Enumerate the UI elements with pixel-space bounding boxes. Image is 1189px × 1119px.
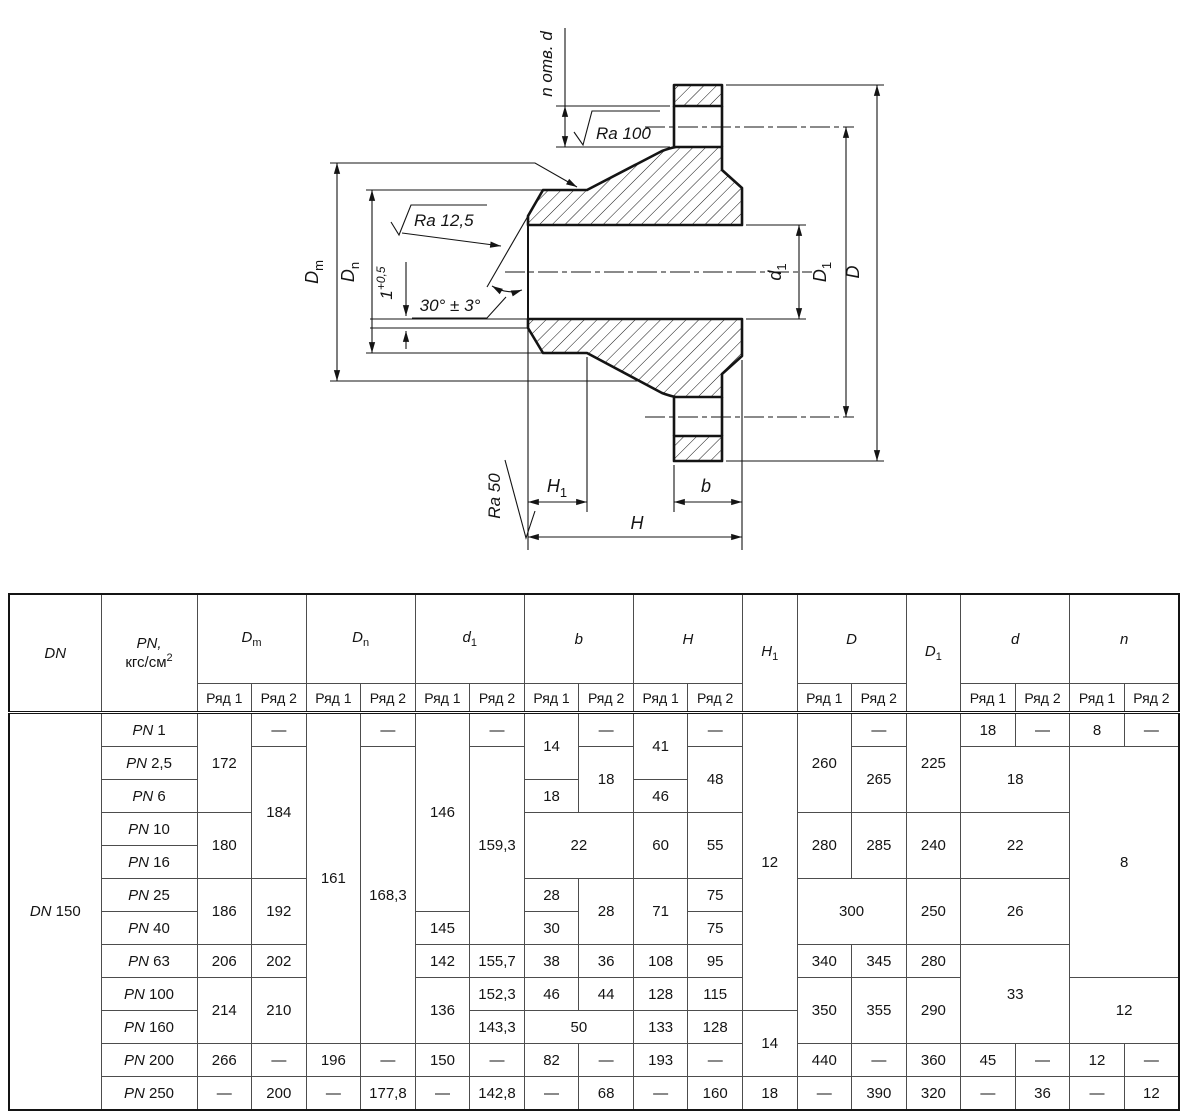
col-header: b	[524, 594, 633, 684]
value-cell: 133	[633, 1011, 688, 1044]
pn-cell: PN 200	[101, 1044, 197, 1077]
value-cell: 202	[252, 945, 307, 978]
value-cell: 196	[306, 1044, 361, 1077]
value-cell: 115	[688, 978, 743, 1011]
series-header: Ряд 2	[852, 684, 907, 713]
value-cell: 186	[197, 879, 252, 945]
value-cell: 136	[415, 978, 470, 1044]
bolt-hole-rim-top	[674, 85, 722, 106]
value-cell: 14	[742, 1011, 797, 1077]
value-cell: 290	[906, 978, 961, 1044]
col-header: D1	[906, 594, 961, 713]
angle-arc	[492, 286, 522, 292]
value-cell: 50	[524, 1011, 633, 1044]
col-header: H1	[742, 594, 797, 713]
value-cell: —	[415, 1077, 470, 1111]
value-cell: 177,8	[361, 1077, 416, 1111]
value-cell: 360	[906, 1044, 961, 1077]
value-cell: 440	[797, 1044, 852, 1077]
table-row: PN 2,5184168,3159,31848265188	[9, 747, 1179, 780]
series-header: Ряд 2	[1015, 684, 1070, 713]
series-header: Ряд 1	[524, 684, 579, 713]
value-cell: 240	[906, 813, 961, 879]
value-cell: 48	[688, 747, 743, 813]
value-cell: 345	[852, 945, 907, 978]
H-label: H	[631, 513, 645, 533]
value-cell: 200	[252, 1077, 307, 1111]
value-cell: 95	[688, 945, 743, 978]
value-cell: 146	[415, 713, 470, 912]
value-cell: 12	[1070, 1044, 1125, 1077]
pn-cell: PN 63	[101, 945, 197, 978]
value-cell: 18	[961, 713, 1016, 747]
value-cell: 192	[252, 879, 307, 945]
value-cell: 159,3	[470, 747, 525, 945]
value-cell: 38	[524, 945, 579, 978]
dn-label: Dn	[338, 262, 362, 282]
value-cell: —	[361, 713, 416, 747]
value-cell: 390	[852, 1077, 907, 1111]
flange-drawing: n отв. d Ra 100 Ra 12,5 Ra 50 30° ± 3° 1…	[0, 0, 1189, 572]
value-cell: —	[688, 713, 743, 747]
col-header: n	[1070, 594, 1179, 684]
pn-cell: PN 160	[101, 1011, 197, 1044]
value-cell: 28	[524, 879, 579, 912]
value-cell: 150	[415, 1044, 470, 1077]
H1-label: H1	[547, 476, 567, 500]
value-cell: 60	[633, 813, 688, 879]
series-header: Ряд 1	[1070, 684, 1125, 713]
bolt-holes-label: n отв. d	[537, 31, 556, 97]
bolt-hole-rim-bottom	[674, 436, 722, 461]
value-cell: 128	[633, 978, 688, 1011]
value-cell: 355	[852, 978, 907, 1044]
col-header: d1	[415, 594, 524, 684]
value-cell: 340	[797, 945, 852, 978]
value-cell: 168,3	[361, 747, 416, 1044]
table-row: PN 250—200—177,8—142,8—68—16018—390320—3…	[9, 1077, 1179, 1111]
value-cell: 350	[797, 978, 852, 1044]
value-cell: 225	[906, 713, 961, 813]
table-row: DN 150PN 1172—161—146—14—41—12260—22518—…	[9, 713, 1179, 747]
land-label: 1+0,5	[374, 266, 396, 299]
value-cell: 142	[415, 945, 470, 978]
series-header: Ряд 1	[306, 684, 361, 713]
value-cell: 68	[579, 1077, 634, 1111]
value-cell: 36	[1015, 1077, 1070, 1111]
ra100-label: Ra 100	[596, 124, 651, 143]
series-header: Ряд 1	[633, 684, 688, 713]
value-cell: 75	[688, 879, 743, 912]
pn-cell: PN 6	[101, 780, 197, 813]
table-row: PN 251861922828717530025026	[9, 879, 1179, 912]
pn-cell: PN 40	[101, 912, 197, 945]
pn-cell: PN 1	[101, 713, 197, 747]
value-cell: 18	[524, 780, 579, 813]
ra125-label: Ra 12,5	[414, 211, 474, 230]
value-cell: 145	[415, 912, 470, 945]
series-header: Ряд 1	[415, 684, 470, 713]
value-cell: 206	[197, 945, 252, 978]
value-cell: —	[579, 713, 634, 747]
value-cell: 108	[633, 945, 688, 978]
series-header: Ряд 2	[1124, 684, 1179, 713]
value-cell: 161	[306, 713, 361, 1044]
value-cell: —	[361, 1044, 416, 1077]
value-cell: 45	[961, 1044, 1016, 1077]
series-header: Ряд 2	[688, 684, 743, 713]
value-cell: 55	[688, 813, 743, 879]
value-cell: 46	[524, 978, 579, 1011]
value-cell: 128	[688, 1011, 743, 1044]
col-header-dn: DN	[9, 594, 101, 713]
series-header: Ряд 1	[797, 684, 852, 713]
angle-label: 30° ± 3°	[420, 296, 481, 315]
value-cell: 160	[688, 1077, 743, 1111]
value-cell: 142,8	[470, 1077, 525, 1111]
D1-label: D1	[810, 262, 834, 282]
value-cell: —	[470, 1044, 525, 1077]
col-header: Dn	[306, 594, 415, 684]
value-cell: —	[197, 1077, 252, 1111]
value-cell: —	[1070, 1077, 1125, 1111]
value-cell: 22	[961, 813, 1070, 879]
value-cell: 18	[742, 1077, 797, 1111]
value-cell: —	[633, 1077, 688, 1111]
value-cell: 30	[524, 912, 579, 945]
value-cell: 155,7	[470, 945, 525, 978]
col-header: D	[797, 594, 906, 684]
col-header: d	[961, 594, 1070, 684]
value-cell: 260	[797, 713, 852, 813]
value-cell: 193	[633, 1044, 688, 1077]
value-cell: 28	[579, 879, 634, 945]
pn-cell: PN 100	[101, 978, 197, 1011]
value-cell: 266	[197, 1044, 252, 1077]
col-header: H	[633, 594, 742, 684]
pn-cell: PN 10	[101, 813, 197, 846]
pn-cell: PN 16	[101, 846, 197, 879]
value-cell: 143,3	[470, 1011, 525, 1044]
flange-dimension-table: DNPN,кгс/см2DmDnd1bHH1DD1dnРяд 1Ряд 2Ряд…	[8, 593, 1180, 1111]
ra50-label: Ra 50	[485, 473, 504, 519]
value-cell: 180	[197, 813, 252, 879]
value-cell: 8	[1070, 747, 1179, 978]
value-cell: 265	[852, 747, 907, 813]
value-cell: 8	[1070, 713, 1125, 747]
value-cell: —	[961, 1077, 1016, 1111]
dn-cell: DN 150	[9, 713, 101, 1111]
value-cell: 320	[906, 1077, 961, 1111]
value-cell: 41	[633, 713, 688, 780]
series-header: Ряд 2	[579, 684, 634, 713]
value-cell: —	[852, 713, 907, 747]
value-cell: 82	[524, 1044, 579, 1077]
value-cell: 46	[633, 780, 688, 813]
b-label: b	[701, 476, 711, 496]
series-header: Ряд 1	[197, 684, 252, 713]
value-cell: 12	[1124, 1077, 1179, 1111]
value-cell: 12	[1070, 978, 1179, 1044]
series-header: Ряд 2	[252, 684, 307, 713]
value-cell: 18	[961, 747, 1070, 813]
value-cell: —	[688, 1044, 743, 1077]
value-cell: —	[579, 1044, 634, 1077]
pn-cell: PN 2,5	[101, 747, 197, 780]
value-cell: 75	[688, 912, 743, 945]
roughness-icon	[505, 460, 535, 538]
value-cell: 71	[633, 879, 688, 945]
value-cell: —	[252, 713, 307, 747]
value-cell: 36	[579, 945, 634, 978]
hub-section-bottom	[528, 319, 742, 397]
page: n отв. d Ra 100 Ra 12,5 Ra 50 30° ± 3° 1…	[0, 0, 1189, 1111]
series-header: Ряд 1	[961, 684, 1016, 713]
hub-section-top	[528, 147, 742, 225]
table-row: PN 1018022605528028524022	[9, 813, 1179, 846]
value-cell: 172	[197, 713, 252, 813]
pn-cell: PN 25	[101, 879, 197, 912]
value-cell: —	[470, 713, 525, 747]
value-cell: 210	[252, 978, 307, 1044]
value-cell: —	[524, 1077, 579, 1111]
value-cell: 214	[197, 978, 252, 1044]
table-row: PN 63206202142155,738361089534034528033	[9, 945, 1179, 978]
value-cell: 285	[852, 813, 907, 879]
value-cell: —	[1124, 1044, 1179, 1077]
value-cell: 12	[742, 713, 797, 1011]
value-cell: —	[252, 1044, 307, 1077]
value-cell: —	[1015, 1044, 1070, 1077]
value-cell: 300	[797, 879, 906, 945]
series-header: Ряд 2	[470, 684, 525, 713]
value-cell: —	[852, 1044, 907, 1077]
dm-label: Dm	[302, 260, 326, 284]
series-header: Ряд 2	[361, 684, 416, 713]
value-cell: 14	[524, 713, 579, 780]
value-cell: 18	[579, 747, 634, 813]
value-cell: 184	[252, 747, 307, 879]
value-cell: 22	[524, 813, 633, 879]
value-cell: —	[1124, 713, 1179, 747]
value-cell: 280	[906, 945, 961, 978]
value-cell: 44	[579, 978, 634, 1011]
value-cell: —	[1015, 713, 1070, 747]
value-cell: —	[797, 1077, 852, 1111]
D-label: D	[843, 266, 863, 279]
value-cell: 152,3	[470, 978, 525, 1011]
value-cell: 250	[906, 879, 961, 945]
col-header: Dm	[197, 594, 306, 684]
value-cell: 26	[961, 879, 1070, 945]
pn-cell: PN 250	[101, 1077, 197, 1111]
table-row: PN 200266—196—150—82—193—440—36045—12—	[9, 1044, 1179, 1077]
value-cell: 280	[797, 813, 852, 879]
col-header-pn: PN,кгс/см2	[101, 594, 197, 713]
value-cell: 33	[961, 945, 1070, 1044]
value-cell: —	[306, 1077, 361, 1111]
